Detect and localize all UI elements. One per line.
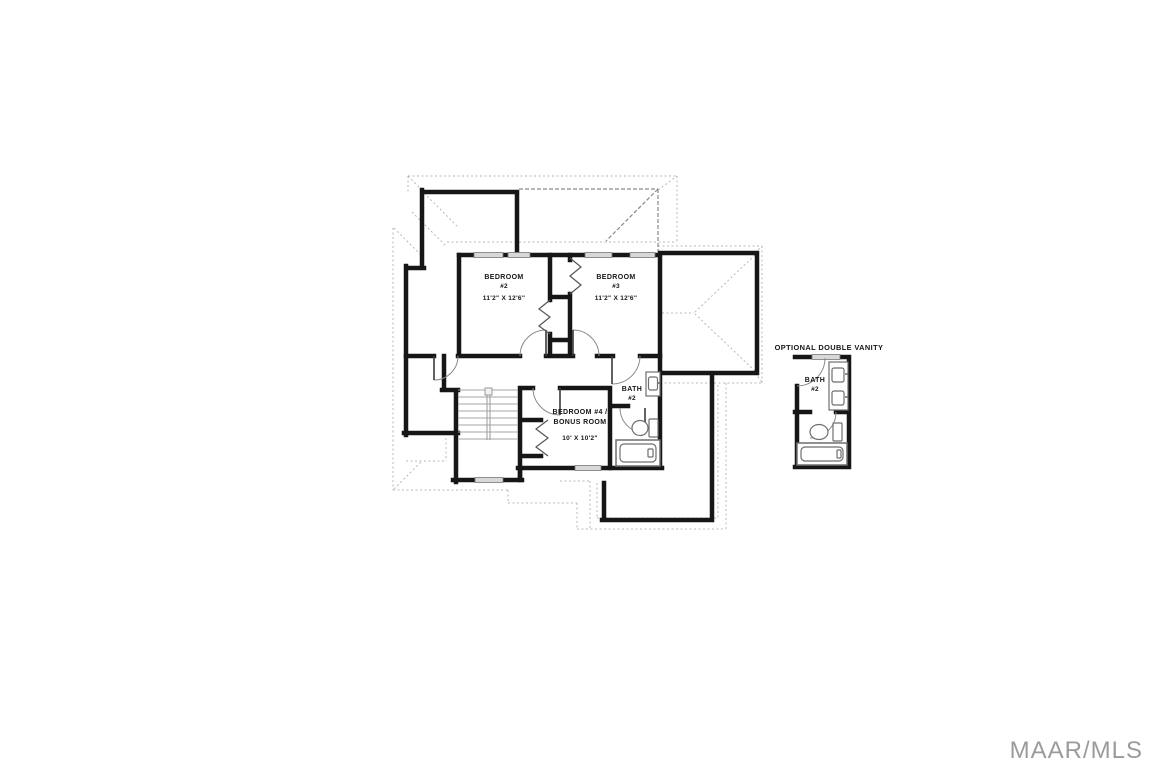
window-bedroom2-right xyxy=(508,253,530,258)
inset-title: OPTIONAL DOUBLE VANITY xyxy=(775,343,884,352)
toilet-icon xyxy=(810,423,842,441)
roof-top-hip-lines xyxy=(394,176,677,255)
window-bedroom2-left xyxy=(474,253,503,258)
door-arc-bedroom3 xyxy=(573,330,599,356)
optional-double-vanity-inset: OPTIONAL DOUBLE VANITY xyxy=(775,343,884,467)
bifold-door-bedroom3-closet xyxy=(570,258,581,294)
mls-watermark: MAAR/MLS xyxy=(1010,737,1143,764)
toilet-icon xyxy=(632,419,658,437)
inset-bath-label: BATH xyxy=(805,377,826,384)
door-arc-bath2 xyxy=(612,356,640,384)
window-bedroom3-right xyxy=(630,253,655,258)
inset-bath-number: #2 xyxy=(811,386,819,393)
window-stairwell xyxy=(475,478,503,483)
floor-plan-page: BEDROOM #2 11'2" X 12'6" BEDROOM #3 11'2… xyxy=(0,0,1152,768)
bedroom4-dimensions: 10' X 10'2" xyxy=(562,435,598,442)
double-vanity-icon xyxy=(829,362,848,410)
window-inset-bath xyxy=(812,355,840,360)
bedroom3-label: BEDROOM xyxy=(596,274,635,281)
bedroom3-dimensions: 11'2" X 12'6" xyxy=(595,295,637,302)
staircase xyxy=(458,388,518,440)
bedroom4-label-line1: BEDROOM #4 / xyxy=(553,409,608,416)
stair-newel-post xyxy=(485,388,492,395)
bath2-number: #2 xyxy=(628,395,636,402)
roof-outline-dotted xyxy=(393,176,762,529)
bedroom4-label-line2: BONUS ROOM xyxy=(554,419,607,426)
roof-top-outline xyxy=(408,176,677,242)
door-arc-bedroom2 xyxy=(520,330,546,356)
bifold-door-bedroom2-closet xyxy=(539,300,550,334)
bedroom3-number: #3 xyxy=(612,283,620,290)
stair-treads xyxy=(458,390,518,439)
window-bedroom4 xyxy=(575,466,601,471)
bathtub-icon xyxy=(616,440,660,466)
bifold-door-bedroom4-closet xyxy=(536,420,548,456)
bedroom2-dimensions: 11'2" X 12'6" xyxy=(483,295,525,302)
bedroom2-number: #2 xyxy=(500,283,508,290)
bedroom2-label: BEDROOM xyxy=(484,274,523,281)
roof-garage-hip-lines xyxy=(662,255,755,371)
inset-labels: BATH #2 xyxy=(805,377,826,393)
bathtub-icon xyxy=(797,443,847,465)
vanity-sink-icon xyxy=(646,372,660,396)
window-bedroom3-left xyxy=(585,253,612,258)
bath2-label: BATH xyxy=(622,386,643,393)
floor-plan-drawing: BEDROOM #2 11'2" X 12'6" BEDROOM #3 11'2… xyxy=(0,0,1152,768)
